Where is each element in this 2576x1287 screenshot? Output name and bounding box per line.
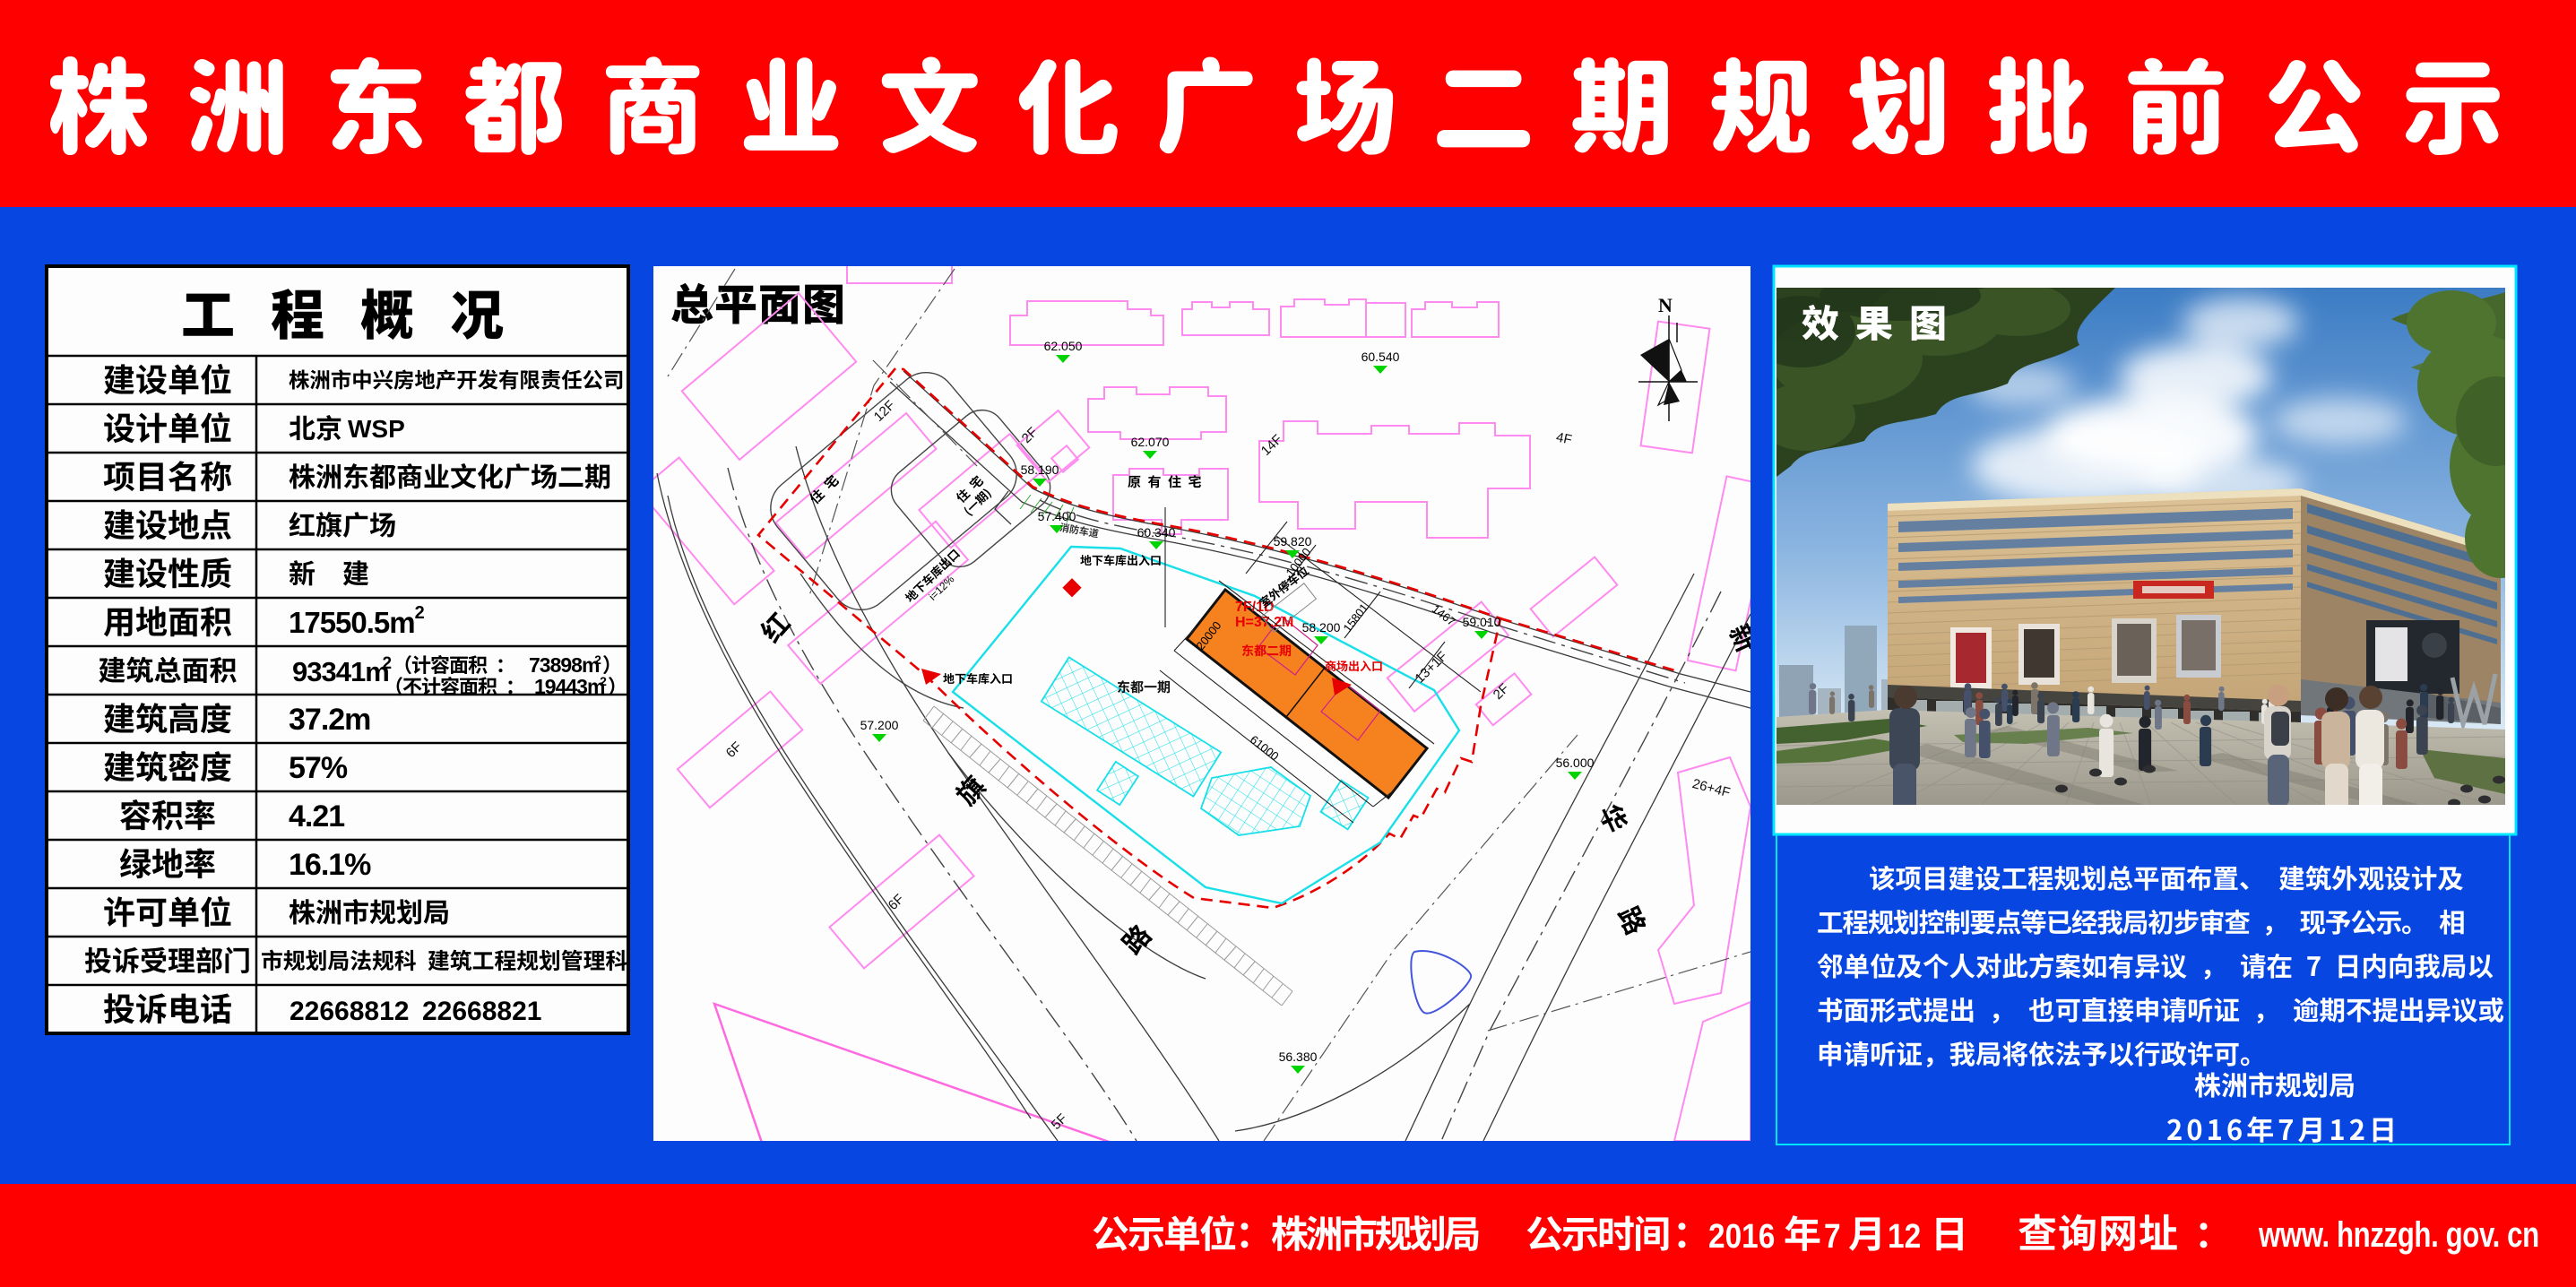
svg-text:37.2m: 37.2m [289, 703, 370, 737]
svg-text:60.340: 60.340 [1137, 525, 1176, 540]
svg-text:58.200: 58.200 [1302, 620, 1341, 635]
svg-text:62.070: 62.070 [1131, 435, 1170, 449]
svg-text:12: 12 [1888, 1217, 1921, 1255]
svg-text:4.21: 4.21 [289, 799, 344, 834]
svg-text:59.010: 59.010 [1463, 615, 1501, 629]
svg-text:17550.5m: 17550.5m [289, 606, 415, 639]
svg-text:60.540: 60.540 [1361, 350, 1400, 364]
svg-text:57%: 57% [289, 751, 348, 785]
svg-text:93341m: 93341m [292, 656, 389, 687]
svg-text:19443m: 19443m [534, 675, 605, 698]
svg-text:4F: 4F [1555, 429, 1574, 447]
svg-text:H=37.2M: H=37.2M [1235, 615, 1293, 630]
svg-text:2016: 2016 [1708, 1217, 1775, 1255]
svg-text:22668821: 22668821 [422, 997, 541, 1026]
svg-text:2: 2 [594, 652, 601, 667]
svg-text:57.400: 57.400 [1038, 509, 1076, 523]
svg-text:2: 2 [415, 603, 425, 623]
svg-text:N: N [1658, 294, 1673, 316]
svg-text:2: 2 [600, 674, 607, 688]
svg-text:59.820: 59.820 [1274, 534, 1312, 548]
svg-text:58.190: 58.190 [1021, 462, 1059, 477]
svg-text:56.000: 56.000 [1556, 756, 1595, 770]
svg-text:16.1%: 16.1% [289, 848, 371, 882]
svg-text:56.380: 56.380 [1279, 1049, 1318, 1064]
svg-text:WSP: WSP [348, 415, 405, 443]
svg-text:22668812: 22668812 [290, 997, 409, 1026]
svg-text:2: 2 [382, 654, 392, 673]
svg-text:7: 7 [1824, 1217, 1841, 1255]
svg-text:57.200: 57.200 [860, 718, 899, 732]
svg-text:www. hnzzgh. gov. cn: www. hnzzgh. gov. cn [2258, 1214, 2539, 1255]
svg-text:73898m: 73898m [529, 653, 600, 677]
svg-text:62.050: 62.050 [1044, 339, 1083, 353]
